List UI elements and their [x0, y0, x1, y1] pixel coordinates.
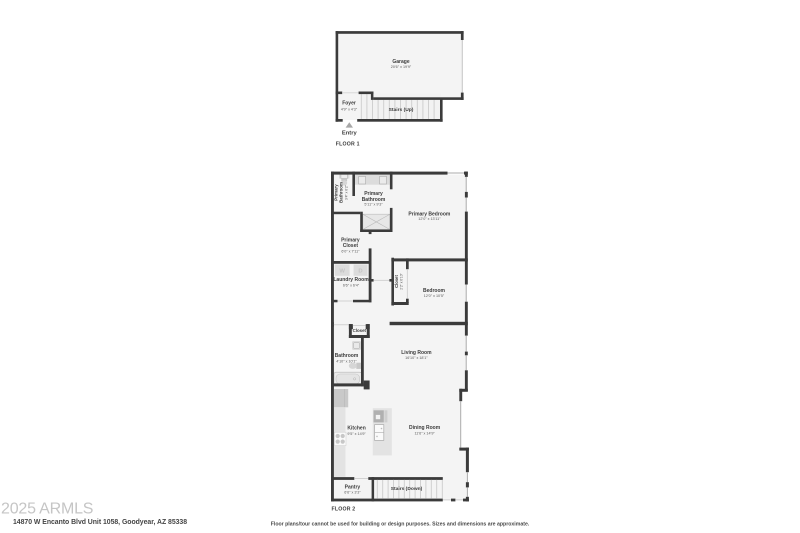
svg-text:Stairs (Up): Stairs (Up) [389, 107, 414, 113]
svg-text:Closet: Closet [343, 243, 359, 249]
svg-text:Foyer: Foyer [342, 101, 356, 107]
svg-text:Dining Room: Dining Room [409, 425, 441, 431]
svg-text:W: W [339, 269, 345, 275]
svg-text:Floor plans/tour cannot be use: Floor plans/tour cannot be used for buil… [271, 521, 530, 527]
svg-text:4’10" x 10’1": 4’10" x 10’1" [336, 359, 357, 363]
svg-text:2025 ARMLS: 2025 ARMLS [1, 501, 93, 518]
svg-text:Kitchen: Kitchen [347, 425, 365, 431]
svg-text:12’0" x 13’11": 12’0" x 13’11" [418, 217, 441, 221]
svg-text:Stairs (Down): Stairs (Down) [391, 486, 423, 492]
svg-text:Garage: Garage [392, 59, 409, 65]
svg-text:4’9" x 4’3": 4’9" x 4’3" [341, 107, 358, 111]
svg-text:3’4" x 6’2": 3’4" x 6’2" [344, 184, 348, 200]
svg-text:6’6" x 6’4": 6’6" x 6’4" [343, 284, 360, 288]
svg-text:Bathroom: Bathroom [335, 353, 359, 359]
svg-text:Bathroom: Bathroom [339, 182, 344, 203]
svg-text:9’5" x 14’9": 9’5" x 14’9" [347, 432, 366, 436]
svg-text:Pantry: Pantry [345, 484, 361, 490]
svg-text:14870 W Encanto Blvd Unit 1058: 14870 W Encanto Blvd Unit 1058, Goodyear… [13, 519, 187, 526]
svg-text:6’6" x 3’3": 6’6" x 3’3" [344, 491, 361, 495]
svg-text:12’0" x 10’5": 12’0" x 10’5" [424, 294, 445, 298]
svg-text:Laundry Room: Laundry Room [333, 277, 369, 283]
svg-text:FLOOR 1: FLOOR 1 [336, 141, 360, 147]
svg-text:5’11" x 9’3": 5’11" x 9’3" [364, 203, 383, 207]
svg-text:6’0" x 7’11": 6’0" x 7’11" [341, 250, 360, 254]
svg-text:Closet: Closet [353, 328, 367, 333]
svg-text:Entry: Entry [342, 131, 358, 137]
svg-text:D: D [358, 269, 362, 275]
svg-text:2’2" x 6’10": 2’2" x 6’10" [399, 272, 403, 289]
svg-text:FLOOR 2: FLOOR 2 [332, 507, 356, 513]
svg-text:16’10" x 18’1": 16’10" x 18’1" [405, 356, 428, 360]
svg-text:Bedroom: Bedroom [423, 288, 446, 294]
svg-text:20’6" x 19’9": 20’6" x 19’9" [391, 65, 412, 69]
svg-text:Closet: Closet [394, 275, 399, 288]
svg-text:11’6" x 14’9": 11’6" x 14’9" [415, 431, 436, 435]
